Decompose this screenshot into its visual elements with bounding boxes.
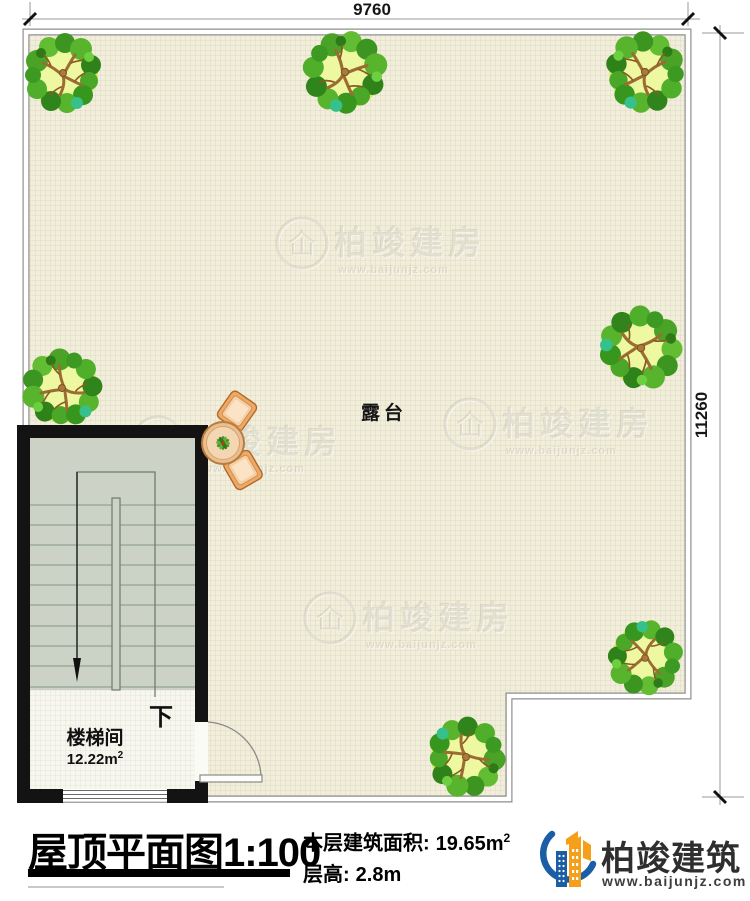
dimension-right: 11260 [692,25,744,805]
dimension-top: 9760 [22,0,700,26]
dimension-top-value: 9760 [353,0,391,19]
terrace-label: 露台 [361,401,407,424]
dimension-right-value: 11260 [692,392,711,438]
floor-height-label: 层高: [303,864,350,886]
floor-height-value: 2.8m [356,864,402,886]
floor-area-value: 19.65m [436,833,504,855]
stair-handrail [112,498,120,690]
brand-url: www.baijunjz.com [602,873,747,889]
floor-area-label: 本层建筑面积: [303,833,430,855]
title-underline [28,869,290,877]
brand-logo-icon [536,827,598,895]
floorplan-drawing: 仚 柏竣建房 www.baijunjz.com [0,0,750,815]
table-icon [202,422,244,464]
stair-direction-label: 下 [149,704,173,731]
stairwell-area: 12.22m2 [67,750,124,768]
floor-height-row: 层高:2.8m [303,860,510,891]
floor-area-sup: 2 [504,831,511,845]
floorplan-page: 仚 柏竣建房 www.baijunjz.com [0,0,750,901]
title-block: 屋顶平面图1:100 本层建筑面积:19.65m2 层高:2.8m [0,815,750,901]
drawing-stats: 本层建筑面积:19.65m2 层高:2.8m [303,823,510,891]
floor-area-row: 本层建筑面积:19.65m2 [303,823,510,860]
stairwell-window [63,789,167,803]
title-underline-light [28,886,224,888]
stairwell-label: 楼梯间 [66,726,123,749]
